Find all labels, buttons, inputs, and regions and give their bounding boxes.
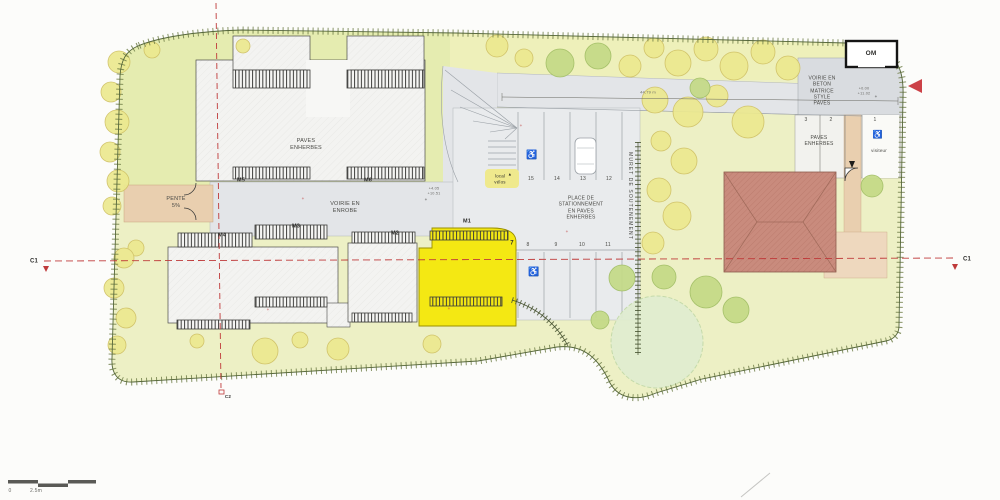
- balcony-strip: [347, 167, 424, 179]
- bike-room-arrow-icon: ▲: [508, 172, 512, 177]
- courtyard: [306, 60, 350, 117]
- stall-number: 9: [555, 242, 558, 248]
- tree: [114, 248, 134, 268]
- tree: [515, 49, 533, 67]
- tree: [732, 106, 764, 138]
- balcony-strip: [178, 233, 252, 247]
- tree: [105, 110, 129, 134]
- balcony-strip: [177, 320, 250, 329]
- tree: [720, 52, 748, 80]
- balcony-strip: [352, 232, 415, 243]
- scale-length: 2.5m: [30, 488, 42, 494]
- marker-m4: M4: [218, 233, 226, 240]
- section-label-c1-right: C1: [963, 256, 971, 264]
- tree: [671, 148, 697, 174]
- label-om: OM: [866, 50, 877, 58]
- stall-number: 1: [874, 117, 877, 123]
- parked-car: [575, 138, 596, 174]
- tree: [644, 38, 664, 58]
- tree: [723, 297, 749, 323]
- stall-number: 13: [580, 176, 586, 182]
- label-muret: MURET DE SOUTENEMENT: [627, 152, 633, 240]
- tree: [652, 265, 676, 289]
- site-plan-drawing: [0, 0, 1000, 500]
- entry-arrow-icon: [908, 79, 922, 93]
- tree: [665, 50, 691, 76]
- stall-number: 8: [527, 242, 530, 248]
- marker-m1: M1: [463, 219, 471, 226]
- elevation-label: +0.00 +11.02: [858, 86, 871, 95]
- tree: [776, 56, 800, 80]
- handicap-icon: ♿: [528, 266, 539, 277]
- stall-number: 7: [510, 240, 514, 248]
- marker-m3: M3: [292, 224, 300, 231]
- stall-number: 2: [830, 117, 833, 123]
- tree: [236, 39, 250, 53]
- balcony-strip: [233, 70, 310, 88]
- tree: [663, 202, 691, 230]
- label-visiteur: visiteur: [871, 148, 887, 154]
- balcony-strip: [255, 297, 327, 307]
- building-m1-highlighted: [419, 228, 516, 326]
- label-voirie-beton: VOIRIE EN BETON MATRICE STYLE PAVES: [808, 75, 835, 106]
- stall-number: 12: [606, 176, 612, 182]
- tree: [673, 97, 703, 127]
- scale-bar: [8, 480, 96, 487]
- level-mark: +: [425, 198, 428, 203]
- tree: [651, 131, 671, 151]
- tree: [690, 276, 722, 308]
- level-mark: +: [566, 230, 569, 235]
- tree: [585, 43, 611, 69]
- tree: [116, 308, 136, 328]
- section-label-c1-left: C1: [30, 258, 38, 266]
- tree: [619, 55, 641, 77]
- elevation-label: +4.05 +10.51: [428, 186, 441, 195]
- label-paves-enherbes-right: PAVES ENHERBES: [804, 135, 833, 148]
- label-place-stationnement: PLACE DE STATIONNEMENT EN PAVES ENHERBES: [559, 196, 604, 221]
- tree: [546, 49, 574, 77]
- marker-m5: M5: [237, 178, 245, 185]
- tree: [292, 332, 308, 348]
- balcony-strip: [430, 231, 508, 240]
- balcony-strip: [430, 297, 502, 306]
- tree: [609, 265, 635, 291]
- tree: [486, 35, 508, 57]
- handicap-icon: ♿: [526, 149, 537, 160]
- label-voirie-enrobe: VOIRIE EN ENROBE: [330, 201, 360, 215]
- stall-number: 15: [528, 176, 534, 182]
- balcony-strip: [352, 313, 412, 322]
- level-mark: +: [267, 308, 270, 313]
- dimension-label: 44,79 m: [640, 90, 656, 95]
- site-plan-canvas: PENTE 5% PAVES ENHERBES VOIRIE EN ENROBE…: [0, 0, 1000, 500]
- stall-number: 10: [579, 242, 585, 248]
- tree: [107, 170, 129, 192]
- tree: [591, 311, 609, 329]
- handicap-icon: ♿: [873, 130, 883, 140]
- tree: [647, 178, 671, 202]
- marker-m6: M6: [364, 178, 372, 185]
- tree: [252, 338, 278, 364]
- scale-zero: 0: [9, 488, 12, 494]
- tree: [190, 334, 204, 348]
- section-label-c2: C2: [225, 394, 231, 400]
- level-mark: +: [875, 95, 878, 100]
- level-mark: +: [520, 124, 523, 129]
- tree: [144, 42, 160, 58]
- label-paves-enherbes-top: PAVES ENHERBES: [290, 138, 322, 152]
- balcony-strip: [347, 70, 424, 88]
- large-tree: [611, 296, 703, 388]
- north-arrow-fragment: [741, 473, 770, 497]
- tree: [690, 78, 710, 98]
- level-mark: +: [302, 197, 305, 202]
- tree: [423, 335, 441, 353]
- existing-house: [724, 172, 836, 272]
- level-mark: +: [448, 307, 451, 312]
- label-local-velos: local vélos: [494, 173, 506, 184]
- tree: [861, 175, 883, 197]
- stall-number: 11: [605, 242, 611, 248]
- label-pente: PENTE 5%: [166, 196, 185, 210]
- marker-m2: M2: [391, 231, 399, 238]
- stall-number: 14: [554, 176, 560, 182]
- stall-number: 3: [805, 117, 808, 123]
- tree: [327, 338, 349, 360]
- tree: [642, 232, 664, 254]
